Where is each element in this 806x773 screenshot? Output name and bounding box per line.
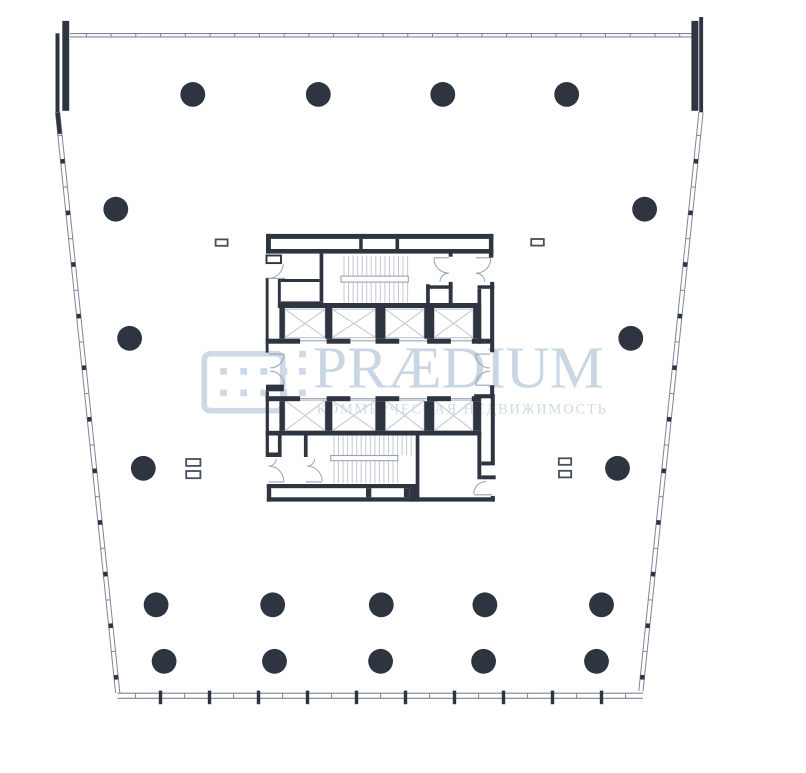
svg-text:КОММЕРЧЕСКАЯ НЕДВИЖИМОСТЬ: КОММЕРЧЕСКАЯ НЕДВИЖИМОСТЬ <box>317 401 608 417</box>
svg-text:PRÆDIUM: PRÆDIUM <box>313 335 603 401</box>
